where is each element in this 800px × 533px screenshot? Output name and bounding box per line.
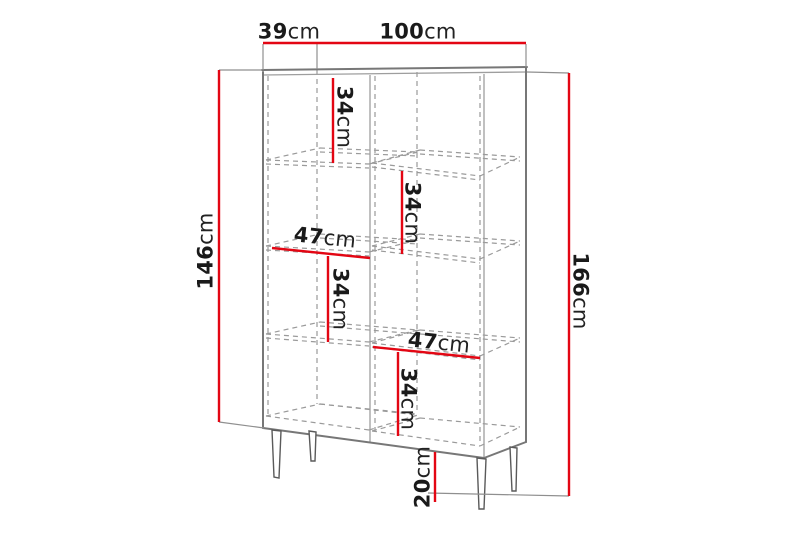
bottom-panel [266,404,418,430]
dim-label-total-height: 166cm [570,252,591,329]
bottom-panel [372,418,520,446]
front-right-leg [477,458,486,509]
dim-label-gap-middle-left: 34cm [330,268,351,330]
cabinet-outline [262,67,527,458]
back-right-leg [510,447,517,491]
shelf [266,148,418,168]
cabinet-hidden-edges [268,70,480,444]
front-left-leg [272,430,281,478]
dim-label-gap-lower-right: 34cm [398,368,419,430]
dim-label-depth: 39cm [258,22,320,43]
dim-label-carcass-height: 146cm [196,212,217,289]
back-left-leg [309,431,316,461]
dim-label-leg-height: 20cm [413,446,434,508]
dim-label-gap-top-left: 34cm [334,86,355,148]
furniture-dimension-diagram: 39cm 100cm 146cm 166cm 34cm 34cm 34cm 34… [0,0,800,533]
cabinet-legs [272,430,517,509]
dim-label-gap-upper-right: 34cm [402,182,423,244]
cabinet-line-drawing [0,0,800,533]
dim-label-width: 100cm [379,22,456,43]
shelves-right-column [372,150,520,446]
